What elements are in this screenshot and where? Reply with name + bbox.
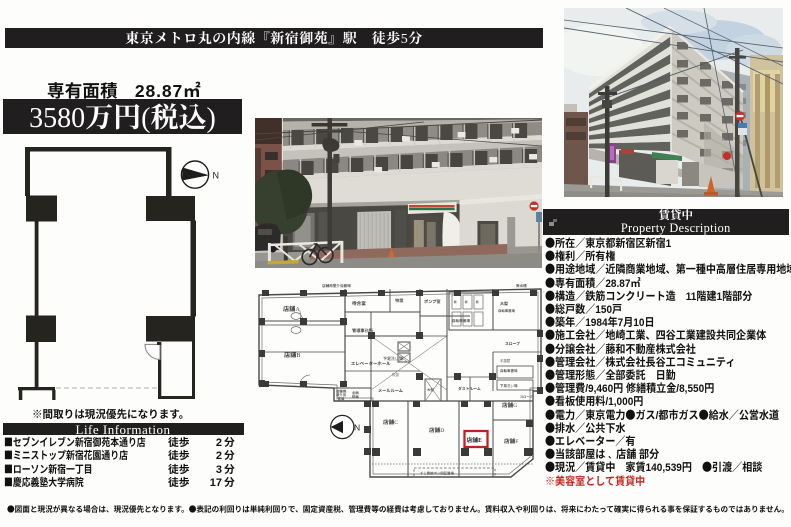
- svg-text:店舗E: 店舗E: [467, 435, 483, 444]
- svg-text:店舗B: 店舗B: [284, 350, 301, 359]
- svg-text:ダストルーム: ダストルーム: [458, 386, 481, 392]
- svg-text:店舗G: 店舗G: [502, 401, 517, 409]
- svg-text:自転車置場: 自転車置場: [452, 318, 470, 324]
- svg-text:大型: 大型: [427, 387, 434, 392]
- svg-text:店舗用室外機置場: 店舗用室外機置場: [322, 283, 351, 289]
- svg-text:スロープ: スロープ: [520, 394, 533, 399]
- svg-text:待合室: 待合室: [352, 301, 366, 307]
- svg-text:店舗D: 店舗D: [429, 426, 444, 434]
- svg-text:自転車置場: 自転車置場: [500, 369, 518, 374]
- svg-text:店舗F: 店舗F: [504, 437, 518, 445]
- svg-text:N: N: [354, 423, 360, 433]
- svg-text:物置: 物置: [395, 298, 404, 304]
- svg-text:受水槽: 受水槽: [516, 283, 527, 289]
- svg-text:ポンプ室: ポンプ室: [424, 299, 441, 305]
- svg-text:?置場: ?置場: [336, 396, 345, 401]
- svg-text:自: 自: [454, 299, 457, 304]
- svg-text:下足洗い場: 下足洗い場: [383, 355, 403, 362]
- svg-text:店舗C: 店舗C: [383, 418, 398, 426]
- svg-text:自: 自: [465, 299, 468, 304]
- svg-text:スロープ: スロープ: [505, 341, 520, 347]
- svg-text:下足洗い場: 下足洗い場: [500, 383, 518, 389]
- svg-text:ずじ看板ポジ回配置場: ずじ看板ポジ回配置場: [420, 471, 455, 476]
- svg-text:吹抜: 吹抜: [392, 372, 400, 378]
- svg-text:店舗A: 店舗A: [283, 304, 300, 313]
- svg-text:自: 自: [476, 299, 479, 304]
- svg-text:手摺壁: 手摺壁: [500, 358, 511, 363]
- svg-text:自転車置場: 自転車置場: [498, 308, 516, 313]
- svg-text:メールルーム: メールルーム: [378, 388, 403, 394]
- svg-text:大型: 大型: [500, 301, 508, 307]
- svg-text:駐輪: 駐輪: [352, 394, 359, 399]
